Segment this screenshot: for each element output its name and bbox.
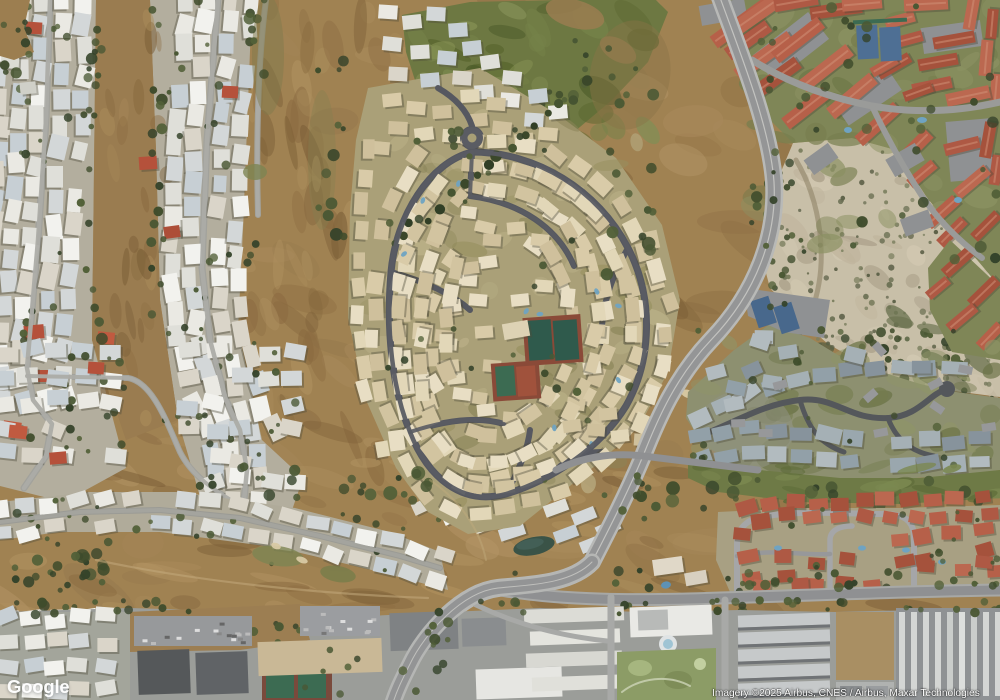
- svg-text:Imagery ©2025 Airbus, CNES / A: Imagery ©2025 Airbus, CNES / Airbus, Max…: [712, 688, 980, 699]
- svg-text:Google: Google: [7, 676, 70, 697]
